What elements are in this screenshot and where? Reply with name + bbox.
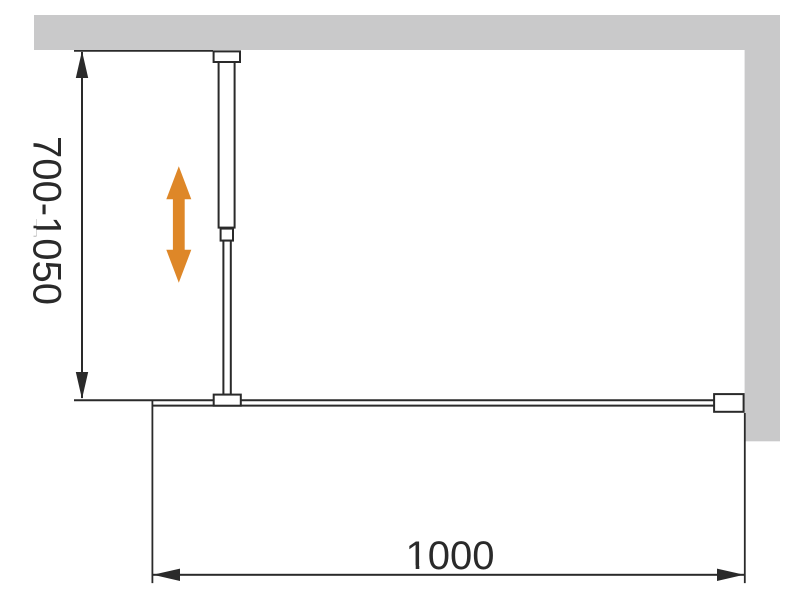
svg-text:700-1050: 700-1050 bbox=[24, 136, 68, 305]
svg-text:1000: 1000 bbox=[406, 534, 495, 578]
